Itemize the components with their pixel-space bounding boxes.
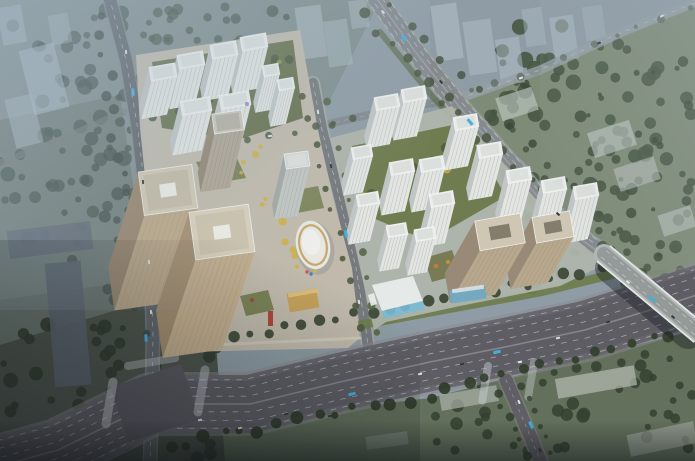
atmosphere-cool-tint <box>0 0 695 461</box>
aerial-masterplan-rendering <box>0 0 695 461</box>
scene-layers <box>0 0 695 461</box>
scene-svg <box>0 0 695 461</box>
